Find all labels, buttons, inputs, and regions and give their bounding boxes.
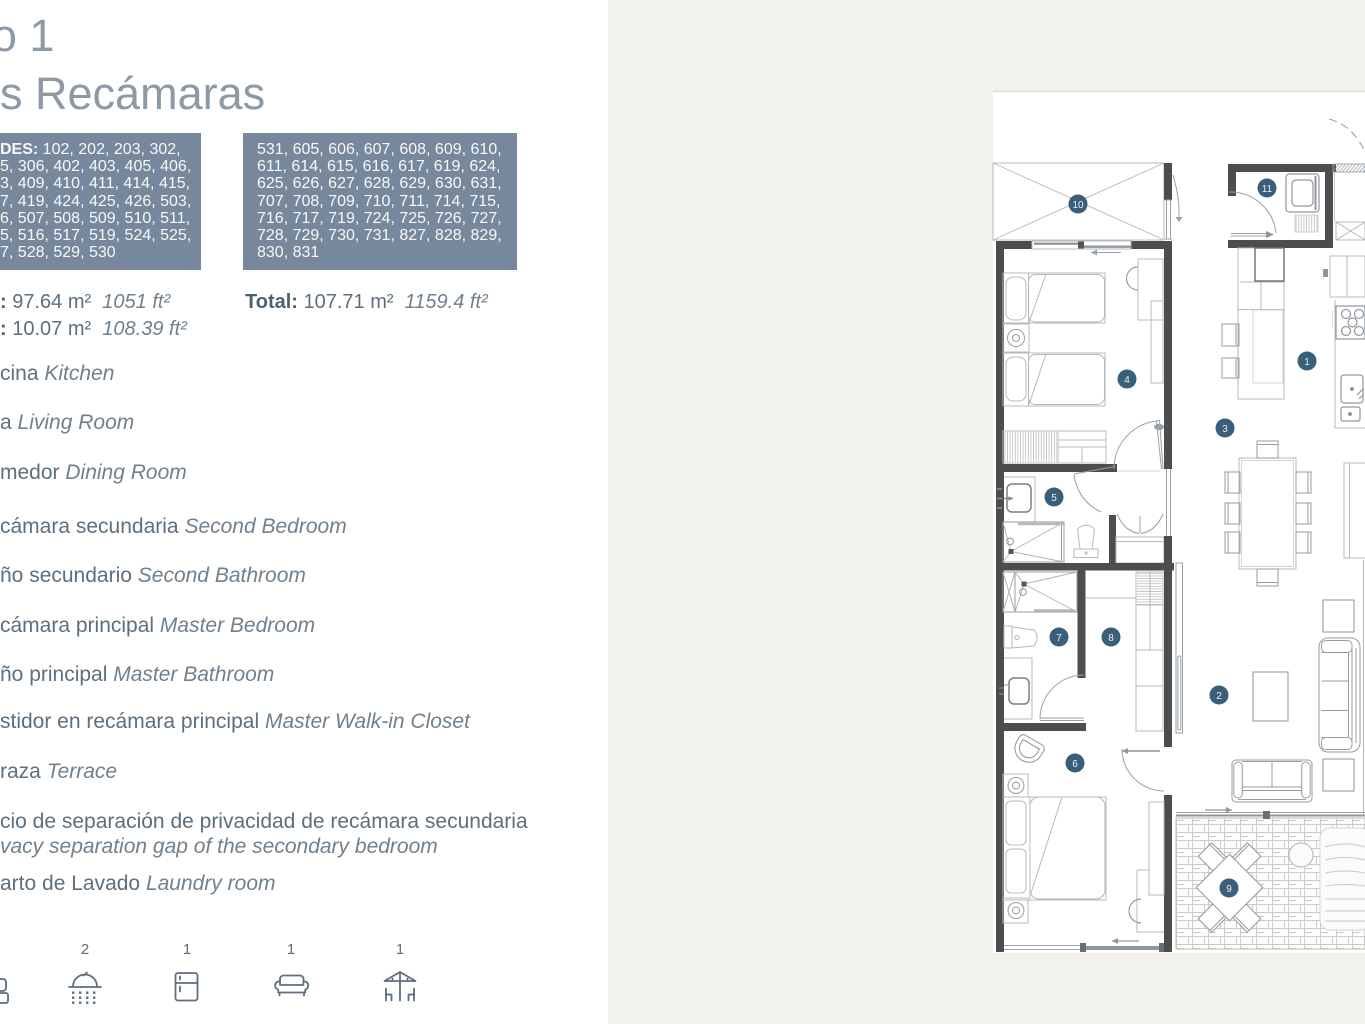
svg-text:11: 11 — [1262, 184, 1273, 195]
svg-text:3: 3 — [1222, 424, 1228, 435]
svg-text:9: 9 — [1226, 884, 1232, 895]
svg-text:8: 8 — [1108, 633, 1114, 644]
svg-text:1: 1 — [1304, 357, 1310, 368]
svg-text:2: 2 — [1216, 691, 1222, 702]
svg-text:4: 4 — [1124, 375, 1130, 386]
svg-text:6: 6 — [1072, 759, 1078, 770]
svg-text:10: 10 — [1072, 200, 1084, 211]
svg-text:7: 7 — [1056, 633, 1062, 644]
svg-text:5: 5 — [1051, 493, 1057, 504]
